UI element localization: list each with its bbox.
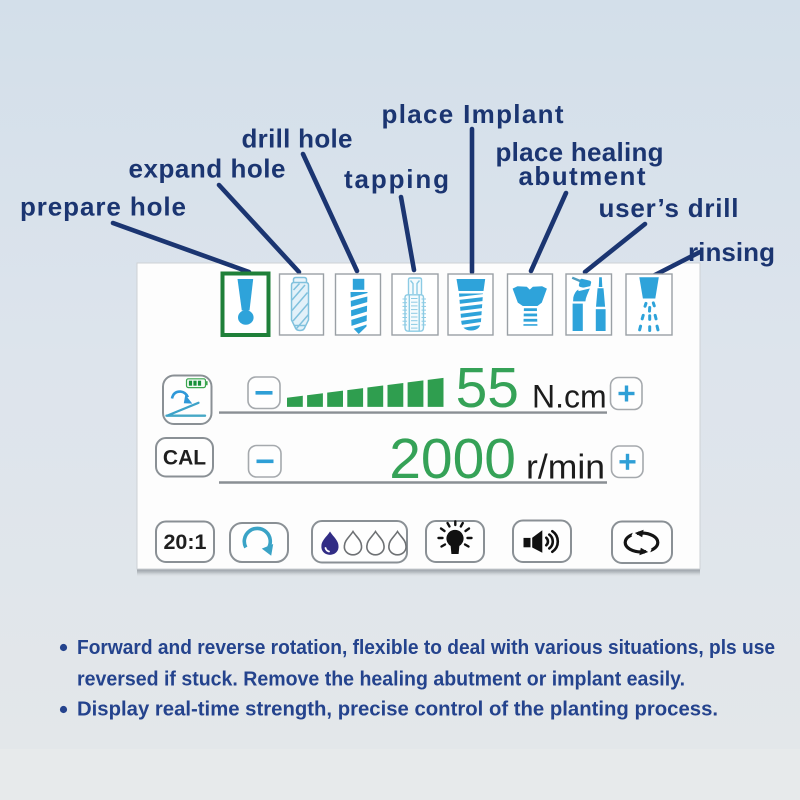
svg-text:Forward and reverse rotation,: Forward and reverse rotation, flexible t…: [77, 636, 775, 659]
svg-text:user’s drill: user’s drill: [599, 193, 739, 223]
svg-text:reversed if stuck. Remove the: reversed if stuck. Remove the healing ab…: [77, 668, 685, 691]
svg-text:N.cm: N.cm: [532, 379, 607, 415]
svg-text:tapping: tapping: [344, 164, 449, 194]
svg-text:expand hole: expand hole: [129, 154, 286, 184]
svg-text:prepare hole: prepare hole: [20, 192, 186, 222]
svg-text:abutment: abutment: [519, 161, 646, 191]
svg-text:r/min: r/min: [526, 449, 605, 487]
svg-text:20:1: 20:1: [163, 530, 206, 554]
svg-text:Display real-time strength, pr: Display real-time strength, precise cont…: [77, 698, 718, 721]
svg-text:55: 55: [456, 356, 519, 420]
svg-text:drill hole: drill hole: [242, 124, 353, 154]
svg-text:CAL: CAL: [163, 447, 206, 470]
